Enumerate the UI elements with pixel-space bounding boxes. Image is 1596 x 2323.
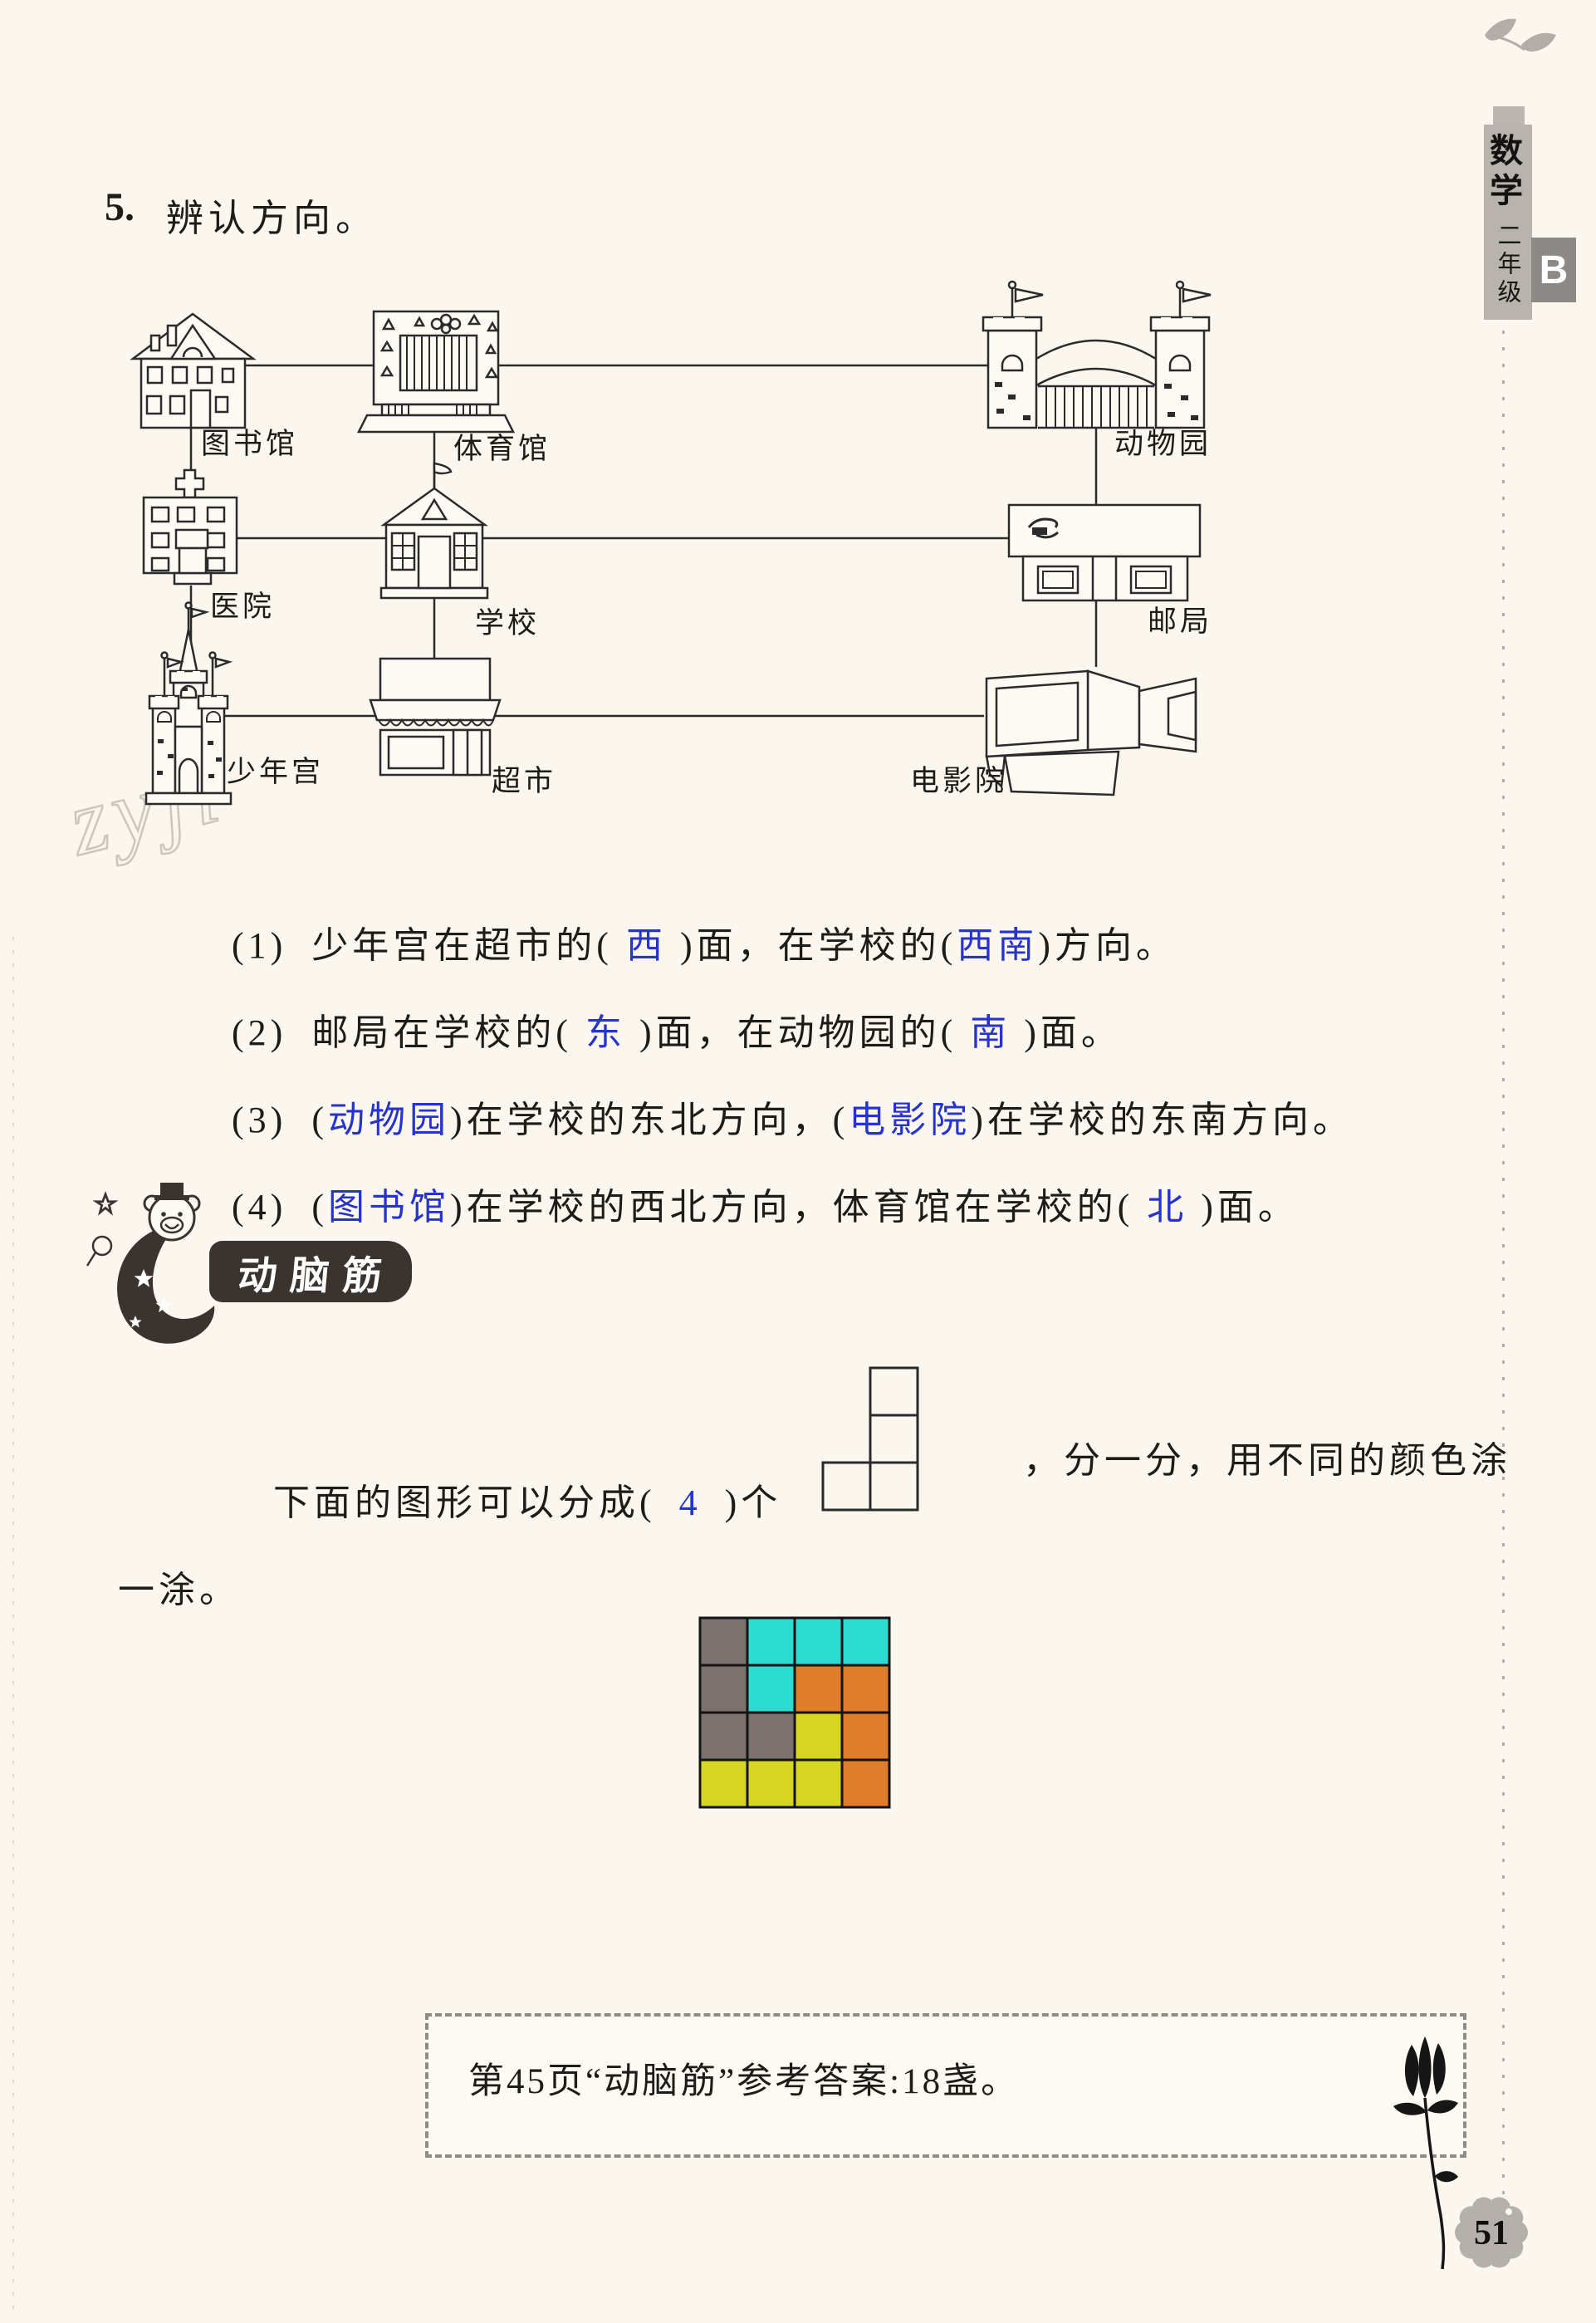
colored-grid	[698, 1615, 892, 1810]
sidebar-book-letter: B	[1540, 247, 1569, 293]
zoo-icon	[983, 282, 1211, 428]
grid-cell	[700, 1618, 747, 1665]
supermarket-icon	[370, 659, 500, 775]
label-supermarket: 超市	[492, 765, 556, 797]
question-5-number: 5.	[105, 184, 135, 230]
page-fold-line	[12, 937, 14, 2316]
sidebar-subject-label: 数学	[1491, 133, 1527, 213]
answer-blank: 北	[1147, 1187, 1187, 1228]
grid-cell	[842, 1760, 889, 1807]
question-4-text: (	[311, 1187, 328, 1228]
brain-teaser-badge: 动脑筋	[209, 1241, 412, 1302]
question-1-number: (1)	[232, 925, 286, 966]
sidebar-book-badge: B	[1531, 238, 1576, 302]
brain-teaser-sentence-start: 下面的图形可以分成(4)个	[220, 1430, 781, 1568]
label-cinema: 电影院	[910, 765, 1007, 797]
grid-cell	[795, 1618, 842, 1665]
direction-map: 图书馆 体育馆 动物园 医院 学校 邮局 少年宫 超市 电影院	[91, 274, 1295, 814]
question-1-text: 少年宫在超市的(	[311, 925, 626, 966]
gymnasium-icon	[359, 311, 513, 432]
brain-teaser-sentence-cont: ，分一分，用不同的颜色涂	[1023, 1430, 1511, 1483]
grid-cell	[795, 1760, 842, 1807]
map-connector-lines	[191, 365, 1096, 716]
grid-cell	[747, 1618, 795, 1665]
label-school: 学校	[475, 607, 540, 640]
grid-cell	[795, 1713, 842, 1760]
brain-teaser-sentence-end: 一涂。	[118, 1560, 240, 1613]
hospital-icon	[144, 470, 237, 584]
grid-cell	[842, 1665, 889, 1713]
question-2-text: 邮局在学校的(	[311, 1012, 585, 1053]
answer-blank: 动物园	[328, 1100, 450, 1140]
brain-teaser-badge-label: 动脑筋	[223, 1243, 397, 1301]
label-zoo: 动物园	[1114, 428, 1212, 460]
page-number: 51	[1474, 2214, 1509, 2252]
label-gym: 体育馆	[453, 433, 551, 465]
youth-palace-icon	[146, 603, 231, 805]
reference-answer-text: 第45页“动脑筋”参考答案:18盏。	[468, 2017, 1019, 2148]
grid-cell	[700, 1665, 747, 1713]
sidebar-tab-top	[1493, 106, 1525, 126]
grid-cell	[747, 1760, 795, 1807]
workbook-page: 数学 二年级 B zyji 5. 辨认方向。	[0, 0, 1596, 2323]
grid-cell	[700, 1713, 747, 1760]
label-post-office: 邮局	[1148, 605, 1212, 638]
tetromino-shape	[820, 1365, 920, 1513]
question-4-number: (4)	[232, 1187, 286, 1228]
grid-cell	[747, 1713, 795, 1760]
cinema-icon	[986, 671, 1196, 795]
question-3-text: (	[311, 1100, 328, 1140]
page-number-badge: 51	[1452, 2193, 1531, 2272]
post-office-icon	[1009, 505, 1200, 600]
answer-blank: 南	[970, 1012, 1011, 1053]
sidebar-dotted-line	[1502, 331, 1505, 2274]
question-2-number: (2)	[232, 1012, 286, 1053]
star-burst-icon	[96, 1194, 115, 1213]
answer-blank: 西	[626, 925, 667, 966]
label-youth-palace: 少年宫	[227, 756, 324, 788]
grid-cell	[747, 1665, 795, 1713]
brain-teaser-mascot-icon	[71, 1181, 224, 1347]
grid-cell	[842, 1713, 889, 1760]
answer-blank: 4	[679, 1483, 702, 1523]
answer-blank: 西南	[957, 925, 1038, 966]
reference-answer-box: 第45页“动脑筋”参考答案:18盏。	[425, 2013, 1466, 2158]
question-5-title: 辨认方向。	[166, 188, 378, 242]
grid-cell	[842, 1618, 889, 1665]
answer-blank: 东	[585, 1012, 626, 1053]
label-library: 图书馆	[201, 428, 298, 460]
answer-blank: 电影院	[849, 1100, 971, 1140]
label-hospital: 医院	[210, 591, 275, 623]
sidebar-grade-label: 二年级	[1495, 223, 1525, 307]
grid-cell	[700, 1760, 747, 1807]
school-icon	[381, 462, 487, 598]
answer-blank: 图书馆	[328, 1187, 450, 1228]
grid-cell	[795, 1665, 842, 1713]
library-icon	[133, 314, 253, 428]
corner-leaf-decoration	[1470, 7, 1586, 65]
question-3-number: (3)	[232, 1100, 286, 1140]
